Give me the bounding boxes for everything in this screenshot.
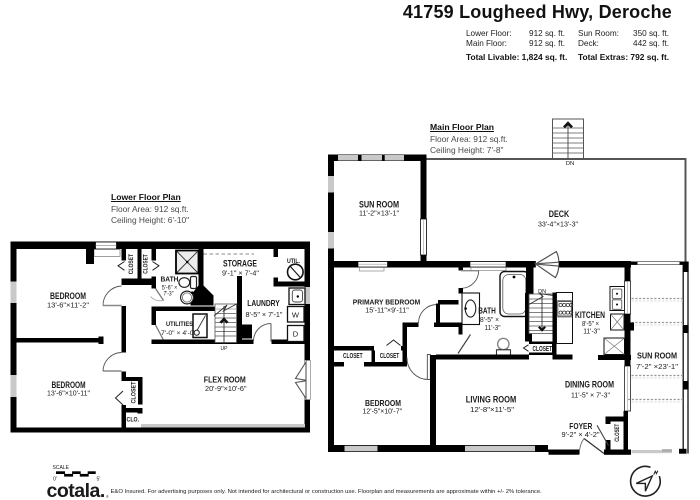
svg-text:cotala.: cotala. [47, 480, 105, 500]
svg-text:9'-2" × 4'-2": 9'-2" × 4'-2" [562, 430, 600, 439]
svg-text:SCALE: SCALE [53, 465, 70, 471]
svg-text:CLOSET: CLOSET [533, 346, 553, 353]
svg-text:CLOSET: CLOSET [131, 381, 138, 404]
svg-text:15'-11"×9'-11": 15'-11"×9'-11" [365, 308, 409, 315]
svg-text:11'-2"×13'-1": 11'-2"×13'-1" [359, 209, 399, 218]
svg-text:SUN ROOM: SUN ROOM [637, 351, 677, 361]
svg-text:8'-5" ×: 8'-5" × [480, 317, 499, 324]
svg-text:7'-0" × 4'-0": 7'-0" × 4'-0" [161, 330, 197, 337]
svg-text:FLEX ROOM: FLEX ROOM [204, 375, 246, 384]
svg-text:UTILITIES: UTILITIES [166, 321, 194, 328]
svg-text:E&O Insured. For advertising p: E&O Insured. For advertising purposes on… [111, 489, 543, 495]
svg-text:CLO.: CLO. [127, 417, 140, 424]
svg-text:BATH: BATH [161, 275, 179, 284]
svg-text:12'-8"×11'-5": 12'-8"×11'-5" [470, 405, 514, 414]
svg-text:®: ® [106, 495, 109, 499]
svg-text:KITCHEN: KITCHEN [575, 310, 605, 320]
svg-text:CLOSET: CLOSET [343, 353, 363, 360]
svg-text:33'-4"×13'-3": 33'-4"×13'-3" [538, 220, 578, 229]
svg-text:13'-6"×10'-11": 13'-6"×10'-11" [47, 389, 90, 398]
svg-text:CLOSET: CLOSET [143, 254, 150, 274]
svg-text:7'-3": 7'-3" [164, 291, 174, 298]
svg-text:CLOSET: CLOSET [128, 254, 135, 275]
svg-text:DINING ROOM: DINING ROOM [565, 380, 614, 390]
svg-text:DECK: DECK [549, 209, 570, 219]
svg-text:DN: DN [538, 289, 546, 295]
svg-text:11'-3": 11'-3" [583, 329, 600, 336]
svg-text:LIVING ROOM: LIVING ROOM [466, 395, 517, 405]
svg-text:8'-5" × 7'-1": 8'-5" × 7'-1" [246, 310, 283, 319]
svg-text:LAUNDRY: LAUNDRY [247, 299, 280, 308]
svg-text:13'-6"×11'-2": 13'-6"×11'-2" [47, 301, 89, 310]
svg-text:CLOSET: CLOSET [614, 424, 621, 442]
svg-text:UP: UP [221, 346, 228, 352]
svg-text:W: W [292, 310, 300, 319]
svg-text:20'-9"×10'-6": 20'-9"×10'-6" [205, 384, 247, 393]
svg-text:12'-5"×10'-7": 12'-5"×10'-7" [363, 408, 403, 415]
svg-text:8'-5" ×: 8'-5" × [582, 321, 599, 328]
svg-text:BEDROOM: BEDROOM [50, 291, 86, 301]
svg-text:7'-2" ×23'-1": 7'-2" ×23'-1" [636, 362, 678, 371]
svg-text:PRIMARY BEDROOM: PRIMARY BEDROOM [353, 298, 421, 307]
svg-text:CLOSET: CLOSET [380, 353, 400, 360]
svg-text:BATH: BATH [478, 307, 496, 316]
svg-text:11'-5" × 7'-3": 11'-5" × 7'-3" [571, 391, 610, 400]
svg-text:BEDROOM: BEDROOM [365, 398, 401, 408]
svg-text:DN: DN [566, 161, 575, 167]
svg-text:D: D [293, 330, 299, 339]
svg-text:STORAGE: STORAGE [223, 259, 257, 269]
svg-text:11'-3": 11'-3" [485, 325, 501, 332]
